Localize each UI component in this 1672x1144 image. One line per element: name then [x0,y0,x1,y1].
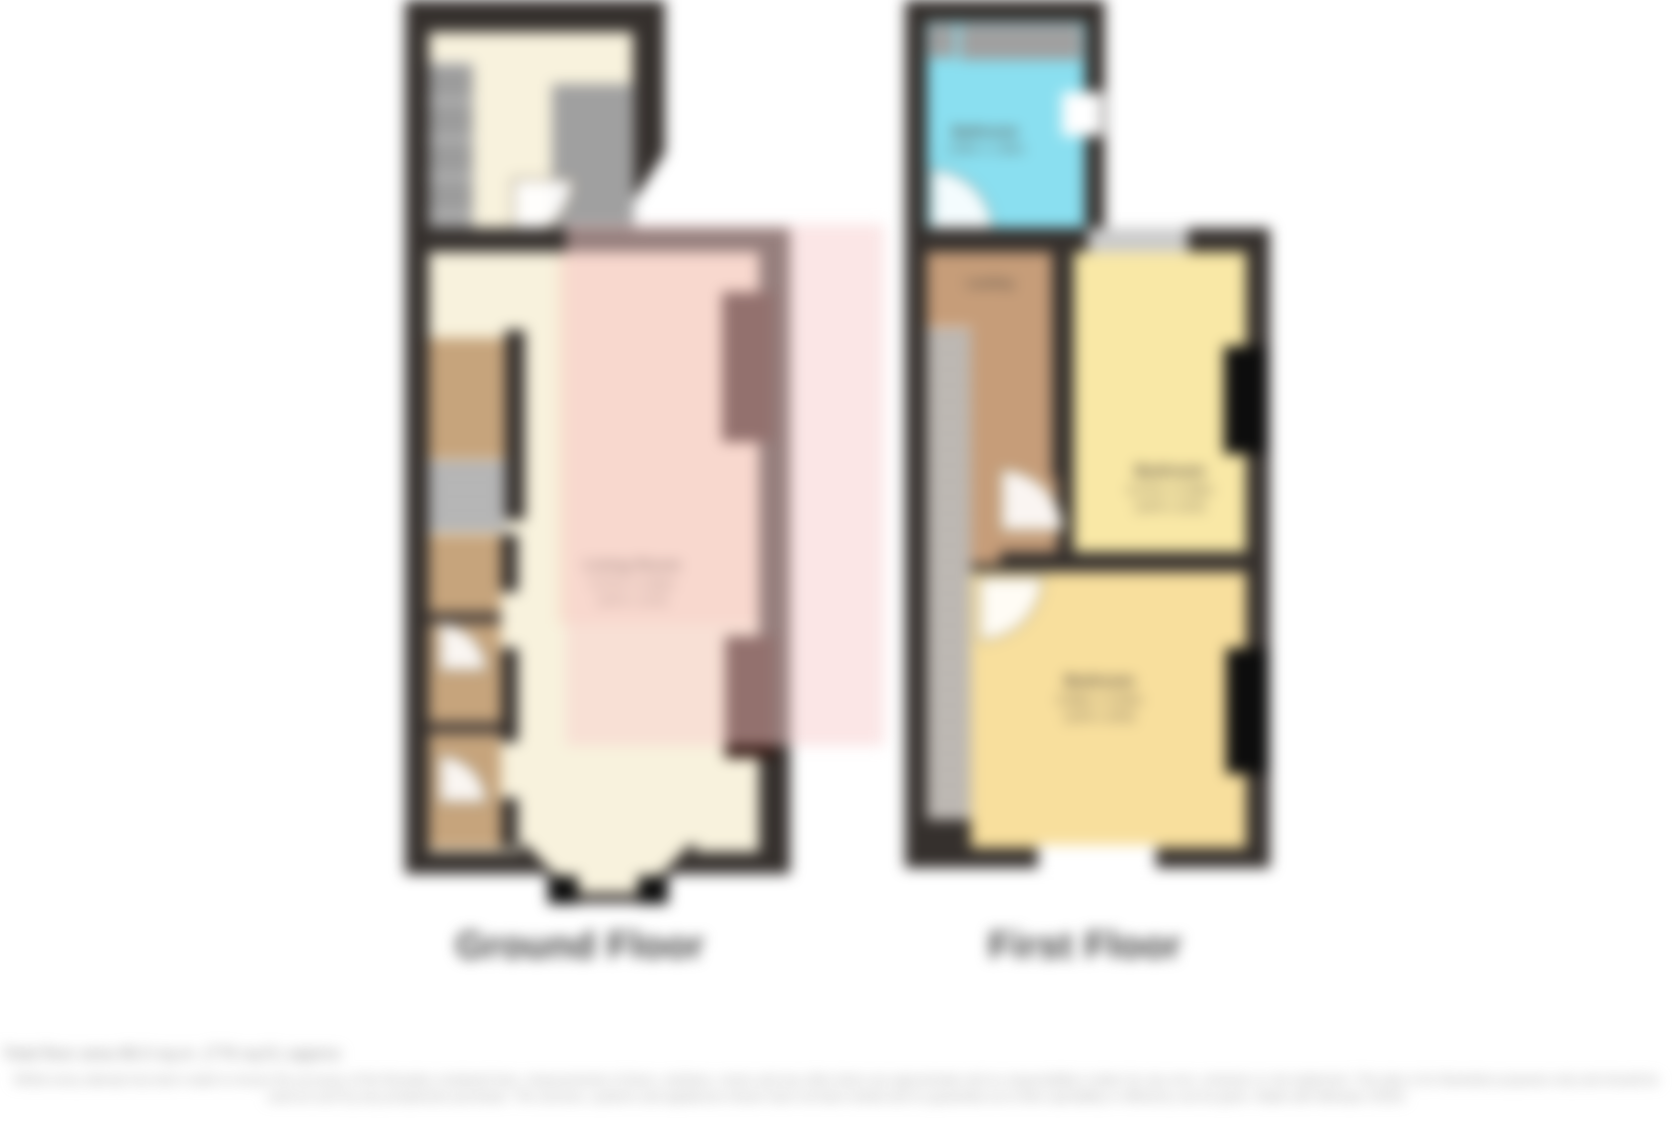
first-floor-title: First Floor [930,925,1240,968]
ground-floor-title: Ground Floor [420,925,740,968]
left-room-door-gap-1 [501,592,518,648]
blurred-content: Living Room 4.57m x 3.66m (15'0 x 12'0) … [0,0,1672,1144]
disclaimer-text: Whilst every attempt has been made to en… [0,1072,1672,1105]
total-floor-area-text: Total floor area 86.0 sq.m. (776 sq.ft.)… [2,1044,341,1064]
kitchen-appliance-strip [429,62,473,252]
bathroom-fixture-small [929,24,955,58]
landing-label: Landing [930,276,1050,290]
bathroom-dims: 1.90m x 1.85m [925,141,1045,158]
left-room-door-gap-2 [501,742,518,798]
bedroom1-dims-imperial: (14'0 x 11'0) [1090,498,1250,515]
bay-post-right [638,876,668,904]
bedroom2-name: Bedroom [1012,672,1187,691]
first-floor-stairs [927,328,971,820]
bedroom1-window-top [1088,228,1188,254]
bedroom2-dims-metric: 3.96m x 3.05m [1012,691,1187,708]
floorplan-image: Living Room 4.57m x 3.66m (15'0 x 12'0) … [0,0,1672,1144]
bedroom-divider-wall [1000,552,1246,572]
left-rooms-wall [501,534,518,848]
bathroom-label: Bathroom 1.90m x 1.85m [925,122,1045,158]
ground-stairs [429,460,505,532]
stair-room-wall [505,330,525,520]
bathroom-fixture-strip [960,24,1082,60]
bathroom-name: Bathroom [925,122,1045,141]
bedroom2-dims-imperial: (13'0 x 10'0) [1012,708,1187,725]
bathroom-wall-notch [1062,92,1102,136]
stair-room-floor [429,338,507,462]
bedroom1-dims-metric: 4.27m x 3.35m [1090,481,1250,498]
bedroom2-label: Bedroom 3.96m x 3.05m (13'0 x 10'0) [1012,672,1187,725]
highlight-overlay [566,224,884,746]
left-rooms-divider-2 [429,722,501,734]
bedroom1-name: Bedroom [1090,462,1250,481]
landing-bedroom1-wall [1052,252,1074,478]
bay-post-left [548,876,578,904]
bedroom2-window-recess [1226,648,1268,774]
bedroom1-label: Bedroom 4.27m x 3.35m (14'0 x 11'0) [1090,462,1250,515]
bedroom1-window-recess [1224,346,1266,454]
bedroom2-bottom-window [1038,845,1156,868]
